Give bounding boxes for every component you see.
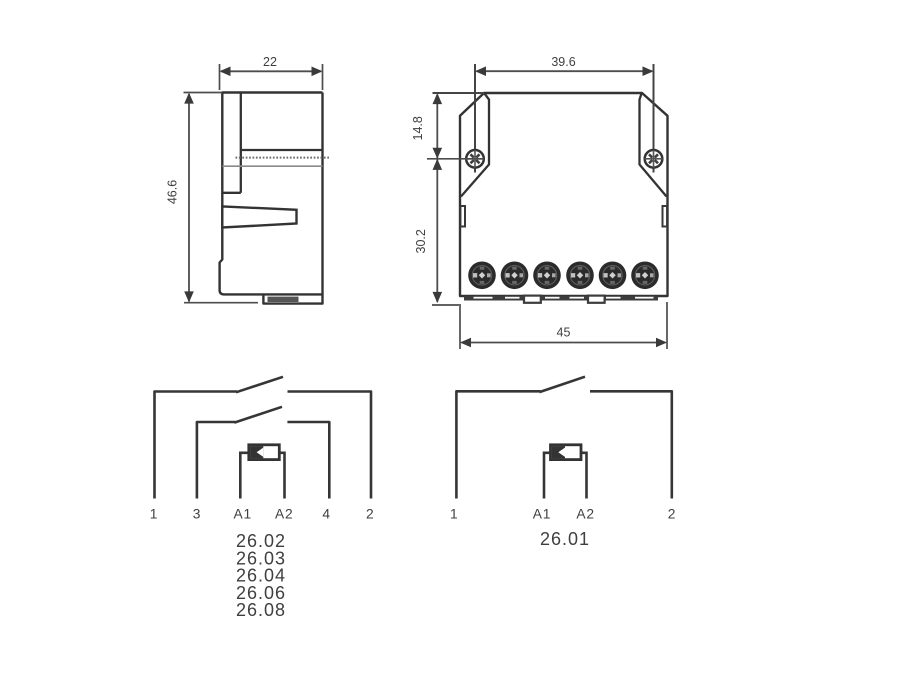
svg-text:2: 2	[668, 507, 676, 522]
svg-text:3: 3	[193, 507, 201, 522]
svg-text:A2: A2	[576, 507, 594, 522]
svg-text:46.6: 46.6	[166, 180, 180, 204]
svg-text:30.2: 30.2	[414, 229, 428, 253]
svg-text:1: 1	[150, 507, 158, 522]
svg-text:1: 1	[450, 507, 458, 522]
svg-text:39.6: 39.6	[551, 55, 575, 69]
svg-text:A2: A2	[275, 507, 293, 522]
svg-text:26.08: 26.08	[236, 600, 286, 620]
svg-text:A1: A1	[233, 507, 251, 522]
svg-text:45: 45	[557, 326, 571, 340]
svg-text:A1: A1	[533, 507, 551, 522]
svg-text:26.01: 26.01	[540, 529, 590, 549]
svg-text:22: 22	[263, 55, 277, 69]
svg-text:4: 4	[322, 507, 330, 522]
svg-text:14.8: 14.8	[411, 116, 425, 140]
svg-text:2: 2	[366, 507, 374, 522]
